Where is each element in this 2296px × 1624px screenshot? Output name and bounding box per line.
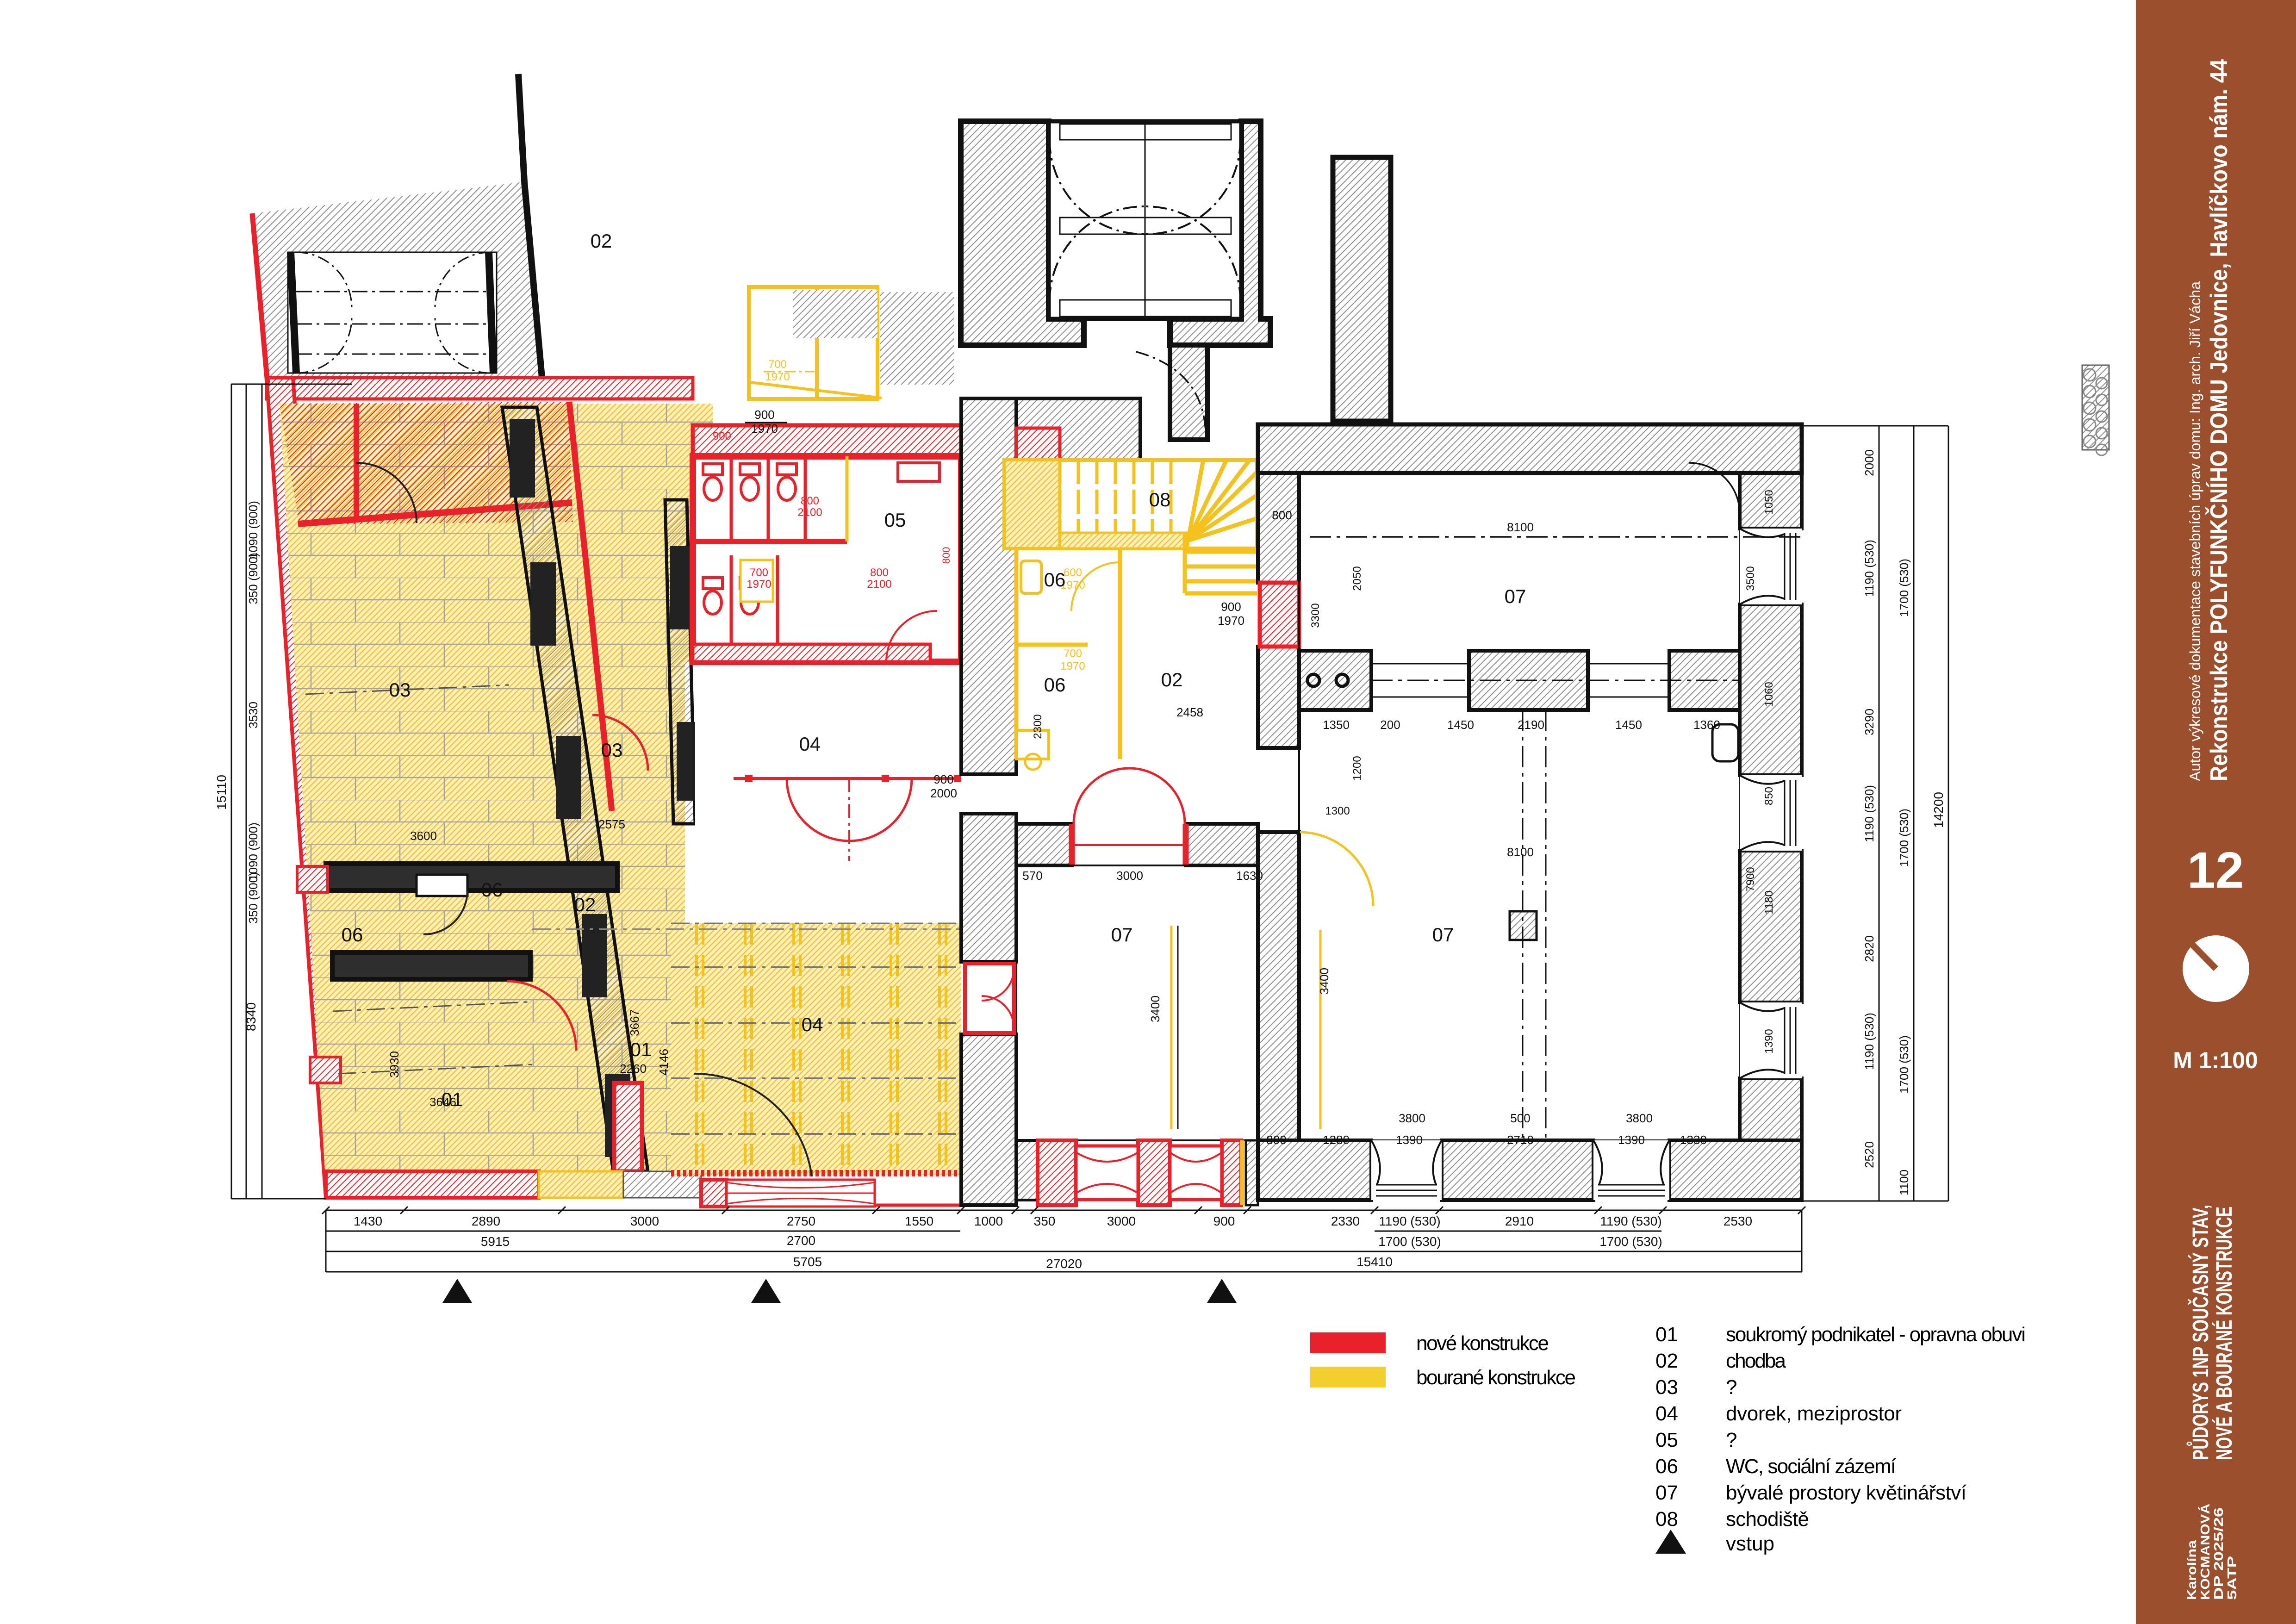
- svg-text:2100: 2100: [867, 578, 891, 591]
- svg-text:06: 06: [342, 924, 363, 946]
- svg-text:DP 2025/26: DP 2025/26: [2211, 1507, 2226, 1600]
- svg-text:07: 07: [1111, 924, 1133, 946]
- svg-text:2820: 2820: [1862, 935, 1876, 962]
- svg-text:06: 06: [1044, 569, 1066, 591]
- svg-text:1970: 1970: [1218, 614, 1244, 628]
- svg-text:3400: 3400: [1148, 996, 1162, 1022]
- svg-text:3000: 3000: [1116, 869, 1143, 883]
- svg-text:bývalé prostory květinářství: bývalé prostory květinářství: [1726, 1481, 1967, 1504]
- svg-text:350: 350: [1034, 1214, 1056, 1228]
- svg-text:chodba: chodba: [1726, 1350, 1786, 1372]
- svg-text:15110: 15110: [214, 775, 229, 810]
- svg-text:dvorek, meziprostor: dvorek, meziprostor: [1726, 1402, 1902, 1425]
- svg-text:Rekonstrukce POLYFUNKČNÍHO DOM: Rekonstrukce POLYFUNKČNÍHO DOMU Jedovnic…: [2205, 59, 2233, 781]
- svg-text:schodiště: schodiště: [1726, 1508, 1809, 1531]
- svg-text:3600: 3600: [410, 829, 437, 843]
- svg-text:8340: 8340: [244, 1002, 258, 1031]
- svg-text:M 1:100: M 1:100: [2173, 1047, 2258, 1073]
- svg-text:800: 800: [1272, 508, 1292, 522]
- svg-text:2910: 2910: [1505, 1214, 1534, 1228]
- svg-text:2100: 2100: [797, 506, 822, 519]
- svg-text:2458: 2458: [1176, 705, 1203, 719]
- svg-text:02: 02: [591, 230, 612, 252]
- svg-text:3800: 3800: [1626, 1111, 1653, 1125]
- svg-text:nové konstrukce: nové konstrukce: [1416, 1332, 1549, 1355]
- svg-text:3930: 3930: [387, 1051, 401, 1078]
- svg-text:200: 200: [1380, 718, 1400, 732]
- svg-text:2330: 2330: [1331, 1214, 1360, 1228]
- svg-text:01: 01: [442, 1089, 463, 1110]
- svg-text:3800: 3800: [1399, 1111, 1425, 1125]
- svg-text:2190: 2190: [1518, 718, 1544, 732]
- svg-text:1450: 1450: [1447, 718, 1474, 732]
- svg-text:03: 03: [1655, 1376, 1678, 1399]
- svg-text:3500: 3500: [1744, 566, 1757, 591]
- svg-text:2260: 2260: [620, 1062, 647, 1076]
- svg-text:2890: 2890: [472, 1214, 500, 1228]
- svg-text:Autor výkresové dokumentace st: Autor výkresové dokumentace stavebních ú…: [2187, 281, 2203, 781]
- svg-text:1090 (900): 1090 (900): [246, 501, 260, 559]
- svg-text:3290: 3290: [1862, 709, 1876, 735]
- svg-text:07: 07: [1655, 1481, 1678, 1504]
- svg-text:3300: 3300: [1309, 603, 1322, 628]
- svg-text:soukromý podnikatel - opravna: soukromý podnikatel - opravna obuvi: [1726, 1323, 2026, 1346]
- svg-text:5705: 5705: [793, 1255, 822, 1269]
- svg-text:2300: 2300: [1032, 714, 1044, 739]
- svg-text:1390: 1390: [1763, 1029, 1775, 1053]
- svg-text:14200: 14200: [1931, 792, 1946, 828]
- svg-text:06: 06: [481, 879, 503, 901]
- svg-text:900: 900: [754, 408, 774, 422]
- svg-text:1970: 1970: [751, 422, 778, 436]
- svg-text:04: 04: [802, 1014, 823, 1035]
- svg-text:2750: 2750: [787, 1214, 815, 1228]
- svg-text:07: 07: [1505, 585, 1526, 607]
- svg-text:08: 08: [1149, 489, 1171, 510]
- svg-text:600: 600: [1064, 566, 1082, 579]
- svg-text:900: 900: [713, 430, 731, 442]
- svg-text:1190 (530): 1190 (530): [1862, 540, 1876, 597]
- svg-text:500: 500: [1510, 1111, 1530, 1125]
- svg-text:1700 (530): 1700 (530): [1897, 1035, 1911, 1094]
- svg-text:700: 700: [1064, 647, 1082, 660]
- svg-text:1100: 1100: [1897, 1170, 1911, 1195]
- svg-text:1450: 1450: [1615, 718, 1642, 732]
- svg-text:1970: 1970: [765, 371, 790, 383]
- svg-text:1190 (530): 1190 (530): [1379, 1214, 1440, 1228]
- svg-text:1190 (530): 1190 (530): [1600, 1214, 1661, 1228]
- svg-text:900: 900: [933, 772, 953, 786]
- svg-text:2050: 2050: [1351, 566, 1363, 591]
- svg-text:1700 (530): 1700 (530): [1897, 559, 1911, 617]
- svg-text:07: 07: [1432, 924, 1454, 946]
- svg-text:2530: 2530: [1724, 1214, 1752, 1228]
- svg-text:1090 (900): 1090 (900): [246, 822, 260, 881]
- svg-text:1700 (530): 1700 (530): [1378, 1234, 1441, 1249]
- svg-text:800: 800: [870, 566, 889, 579]
- svg-text:1350: 1350: [1323, 718, 1350, 732]
- svg-text:01: 01: [1655, 1323, 1678, 1346]
- svg-text:1300: 1300: [1325, 805, 1350, 817]
- svg-text:350 (900): 350 (900): [246, 872, 260, 923]
- svg-text:KOCMANOVÁ: KOCMANOVÁ: [2198, 1504, 2212, 1600]
- svg-text:3530: 3530: [246, 702, 260, 728]
- svg-text:1700 (530): 1700 (530): [1599, 1234, 1662, 1249]
- svg-text:3000: 3000: [630, 1214, 659, 1228]
- svg-text:03: 03: [601, 739, 623, 761]
- svg-text:?: ?: [1726, 1429, 1737, 1451]
- svg-text:900: 900: [1221, 600, 1241, 614]
- svg-text:700: 700: [768, 358, 787, 371]
- svg-text:700: 700: [750, 566, 768, 579]
- svg-text:350 (900): 350 (900): [246, 553, 260, 604]
- svg-text:8100: 8100: [1507, 845, 1534, 859]
- svg-text:1390: 1390: [1618, 1133, 1645, 1147]
- svg-text:850: 850: [1763, 787, 1775, 805]
- svg-text:05: 05: [1655, 1429, 1678, 1451]
- svg-text:01: 01: [630, 1039, 652, 1060]
- svg-text:2000: 2000: [930, 786, 957, 800]
- svg-text:Karolína: Karolína: [2184, 1540, 2199, 1600]
- svg-text:02: 02: [574, 894, 596, 915]
- svg-text:1330: 1330: [1680, 1133, 1707, 1147]
- svg-text:1700 (530): 1700 (530): [1897, 809, 1911, 867]
- svg-text:2520: 2520: [1862, 1141, 1876, 1168]
- svg-text:NOVÉ A BOURANÉ KONSTRUKCE: NOVÉ A BOURANÉ KONSTRUKCE: [2212, 1207, 2237, 1460]
- svg-text:1190 (530): 1190 (530): [1862, 785, 1876, 842]
- svg-text:1050: 1050: [1763, 490, 1775, 514]
- svg-text:08: 08: [1655, 1508, 1678, 1531]
- svg-text:570: 570: [1022, 869, 1042, 883]
- svg-text:bourané konstrukce: bourané konstrukce: [1416, 1366, 1576, 1389]
- svg-text:3400: 3400: [1317, 968, 1331, 995]
- svg-text:1280: 1280: [1323, 1133, 1350, 1147]
- svg-text:?: ?: [1726, 1376, 1737, 1399]
- svg-text:8100: 8100: [1507, 520, 1534, 534]
- svg-text:12: 12: [2187, 842, 2244, 899]
- svg-text:1190 (530): 1190 (530): [1862, 1013, 1876, 1070]
- svg-text:5915: 5915: [481, 1234, 510, 1249]
- svg-text:02: 02: [1161, 669, 1183, 691]
- svg-text:03: 03: [389, 679, 411, 701]
- svg-text:2700: 2700: [787, 1233, 815, 1248]
- svg-text:800: 800: [1266, 1133, 1286, 1147]
- svg-text:1060: 1060: [1763, 682, 1775, 706]
- svg-text:06: 06: [1655, 1455, 1678, 1478]
- svg-text:PŮDORYS 1NP SOUČASNÝ STAV,: PŮDORYS 1NP SOUČASNÝ STAV,: [2186, 1205, 2213, 1460]
- svg-text:04: 04: [799, 733, 821, 755]
- svg-text:06: 06: [1044, 674, 1066, 696]
- svg-text:04: 04: [1655, 1402, 1678, 1425]
- svg-text:1200: 1200: [1351, 756, 1363, 780]
- svg-text:2575: 2575: [598, 817, 625, 831]
- svg-text:vstup: vstup: [1726, 1532, 1774, 1555]
- svg-text:1970: 1970: [747, 578, 771, 591]
- svg-text:1390: 1390: [1396, 1133, 1423, 1147]
- svg-text:800: 800: [801, 495, 819, 507]
- svg-text:1000: 1000: [974, 1214, 1003, 1228]
- svg-text:2710: 2710: [1507, 1133, 1534, 1147]
- svg-text:27020: 27020: [1046, 1257, 1082, 1271]
- svg-text:02: 02: [1655, 1350, 1678, 1372]
- svg-text:WC, sociální zázemí: WC, sociální zázemí: [1726, 1455, 1897, 1478]
- svg-text:1180: 1180: [1763, 890, 1775, 915]
- svg-text:2000: 2000: [1862, 449, 1876, 476]
- svg-text:1970: 1970: [1060, 660, 1085, 672]
- svg-text:1630: 1630: [1236, 869, 1263, 883]
- svg-text:05: 05: [884, 509, 906, 531]
- svg-text:7900: 7900: [1744, 867, 1757, 891]
- svg-text:15410: 15410: [1356, 1255, 1393, 1269]
- svg-text:3667: 3667: [628, 1009, 641, 1036]
- svg-text:1360: 1360: [1693, 718, 1720, 732]
- svg-text:1550: 1550: [905, 1214, 933, 1228]
- svg-text:1430: 1430: [354, 1214, 382, 1228]
- svg-text:5ATP: 5ATP: [2225, 1556, 2239, 1600]
- svg-text:4146: 4146: [657, 1049, 671, 1076]
- svg-text:800: 800: [940, 547, 952, 564]
- svg-text:900: 900: [1213, 1214, 1235, 1228]
- svg-text:3000: 3000: [1107, 1214, 1136, 1228]
